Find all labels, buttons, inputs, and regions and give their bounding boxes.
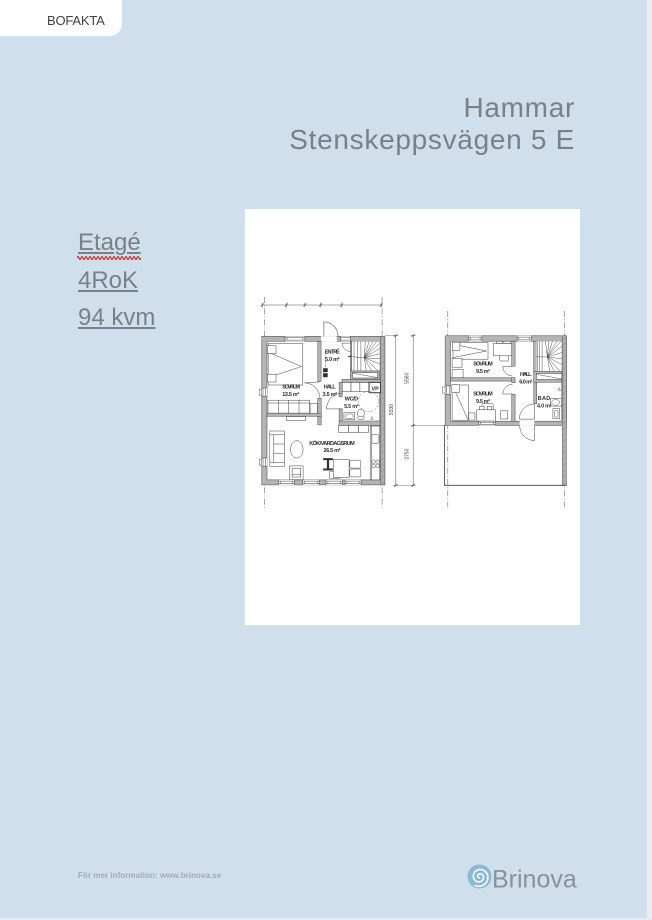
svg-text:SOVRUM: SOVRUM <box>473 391 493 397</box>
svg-text:Brinova: Brinova <box>492 866 577 894</box>
svg-text:5580: 5580 <box>404 372 410 383</box>
svg-text:KÖK/VARDAGSRUM: KÖK/VARDAGSRUM <box>309 440 355 447</box>
svg-text:SOVRUM: SOVRUM <box>473 361 493 367</box>
svg-text:BAD: BAD <box>537 396 550 402</box>
svg-text:ENTRÉ: ENTRÉ <box>324 347 339 355</box>
svg-text:9.5 m²: 9.5 m² <box>476 398 490 405</box>
svg-text:3750: 3750 <box>404 448 410 459</box>
svg-text:9.5 m²: 9.5 m² <box>476 368 490 375</box>
svg-text:5.0 m²: 5.0 m² <box>325 356 340 363</box>
svg-text:WC/D: WC/D <box>344 396 358 402</box>
svg-text:VP: VP <box>371 387 379 393</box>
svg-text:13.5 m²: 13.5 m² <box>282 391 299 398</box>
svg-text:SOVRUM: SOVRUM <box>282 385 300 391</box>
svg-text:5.5 m²: 5.5 m² <box>344 403 359 410</box>
svg-text:4.0 m²: 4.0 m² <box>537 402 552 409</box>
svg-text:HALL: HALL <box>520 372 532 378</box>
svg-text:HALL: HALL <box>323 385 336 391</box>
svg-text:6.0 m²: 6.0 m² <box>519 378 532 385</box>
svg-text:9330: 9330 <box>389 404 395 415</box>
svg-text:3.5 m²: 3.5 m² <box>322 391 337 398</box>
svg-text:26.5 m²: 26.5 m² <box>323 447 340 454</box>
